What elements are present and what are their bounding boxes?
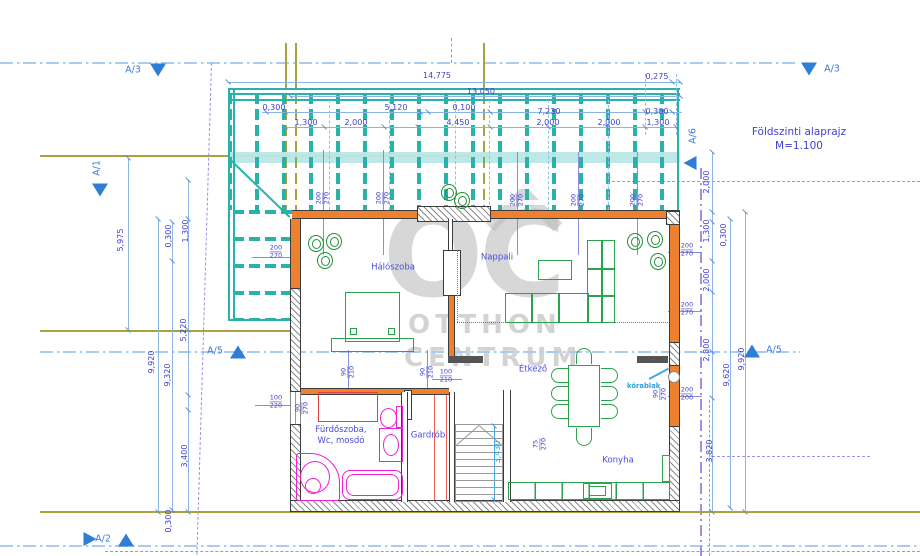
dimension-label: 0,300	[646, 108, 669, 116]
section-marker-triangle-icon	[801, 63, 817, 76]
hatched-wall	[417, 206, 491, 222]
furniture-line	[531, 293, 533, 323]
dimension-label: 3,400	[181, 445, 189, 468]
section-marker-label: A/3	[824, 64, 840, 74]
exterior-wall	[669, 219, 680, 342]
opening-width: 90	[340, 366, 347, 378]
pergola-edge	[677, 88, 679, 210]
section-marker-triangle-icon	[744, 345, 760, 358]
bath-fixture	[383, 434, 399, 456]
bath-fixture	[346, 474, 399, 496]
dining-chair	[551, 386, 568, 401]
section-marker-label: A/5	[766, 345, 782, 355]
room-label: Konyha	[602, 455, 633, 466]
opening-height: 210	[440, 377, 452, 384]
pergola-joists	[228, 210, 292, 320]
sliding-door-rail	[434, 395, 435, 500]
opening-width: 200	[570, 194, 577, 206]
opening-size-label: 200270	[681, 301, 693, 316]
dimension-label: 0,275	[646, 73, 669, 81]
plant-icon	[454, 192, 470, 209]
section-marker-triangle-icon	[230, 346, 246, 359]
dimension-label: 1,300	[647, 119, 670, 127]
dimension-label: 13,050	[467, 88, 495, 96]
drawing-scale: M=1.100	[742, 140, 856, 154]
section-marker-triangle-icon	[84, 532, 97, 546]
plant-icon	[317, 252, 333, 269]
dimension-label: 2,000	[345, 119, 368, 127]
dimension-label: 0,300	[720, 224, 728, 247]
dining-chair	[576, 428, 592, 446]
opening-height: 200	[681, 395, 693, 402]
hatched-wall	[290, 288, 301, 392]
dimension-label: 9,920	[148, 351, 156, 374]
opening-width: 100	[270, 394, 282, 401]
opening-size-label: 200270	[629, 194, 644, 206]
plot-boundary-line	[40, 330, 292, 332]
hatched-wall	[669, 342, 680, 366]
opening-width: 200	[681, 242, 693, 249]
opening-height: 270	[518, 194, 525, 206]
dimension-chain-line	[290, 96, 680, 97]
furniture-line	[558, 293, 560, 323]
pergola-edge	[228, 88, 230, 321]
dimension-label: 1,300	[703, 220, 711, 243]
dimension-label: 9,620	[723, 364, 731, 387]
opening-size-label: 90270	[652, 388, 667, 400]
dimension-label: 14,775	[423, 72, 451, 80]
dimension-label: 0,300	[263, 104, 286, 112]
pergola-edge	[233, 88, 235, 321]
pergola-beam	[228, 93, 680, 101]
shower-tray	[318, 392, 378, 422]
plant-icon	[308, 235, 324, 252]
opening-height: 220	[270, 403, 282, 410]
hatched-wall	[669, 426, 680, 502]
dimension-label: 0,300	[165, 225, 173, 248]
opening-height: 270	[681, 310, 693, 317]
opening-height: 270	[384, 192, 391, 204]
bath-fixture	[380, 408, 397, 428]
opening-height: 210	[428, 366, 435, 378]
plant-icon	[326, 233, 342, 250]
drawing-title: Földszinti alaprajz M=1.100	[742, 126, 856, 153]
opening-height: 270	[324, 192, 331, 204]
opening-height: 270	[541, 438, 548, 450]
opening-size-label: 200270	[270, 244, 282, 259]
dimension-label: 0,300	[165, 510, 173, 533]
plant-icon	[647, 231, 663, 248]
wall-sill	[448, 356, 483, 363]
furniture-line	[587, 268, 615, 270]
dimension-chain-line	[262, 112, 682, 113]
dimension-label: 7,230	[538, 108, 561, 116]
opening-width: 200	[315, 192, 322, 204]
section-marker-triangle-icon	[118, 534, 134, 547]
dimension-label: 1,300	[295, 119, 318, 127]
round-window	[668, 371, 680, 383]
dimension-label: 2,800	[703, 339, 711, 362]
dimension-label: 3,820	[706, 440, 714, 463]
dining-chair	[576, 348, 592, 364]
witness-dashed-line	[489, 100, 490, 210]
furniture-outline	[331, 338, 414, 352]
opening-size-label: 200270	[375, 192, 390, 204]
opening-size-label: 200270	[315, 192, 330, 204]
opening-size-label: 90210	[340, 366, 355, 378]
dimension-chain-line	[128, 158, 129, 330]
furniture-outline	[568, 365, 600, 427]
furniture-outline	[350, 328, 357, 335]
opening-width: 75	[532, 438, 539, 450]
drawing-title-text: Földszinti alaprajz	[742, 126, 856, 140]
opening-size-label: 100210	[440, 368, 452, 383]
opening-width: 90	[294, 402, 301, 414]
opening-width: 90	[652, 388, 659, 400]
bath-fixture	[396, 406, 403, 428]
opening-size-label: 200270	[509, 194, 524, 206]
section-marker-label: A/2	[95, 534, 111, 544]
section-marker-label: A/5	[207, 346, 223, 356]
dimension-label: 4,450	[447, 119, 470, 127]
dimension-chain-line	[285, 127, 677, 128]
furniture-outline	[662, 455, 670, 482]
opening-height: 210	[349, 366, 356, 378]
dimension-label: 2,000	[537, 119, 560, 127]
opening-height: 270	[661, 388, 668, 400]
furniture-outline	[388, 328, 395, 335]
opening-width: 90	[419, 366, 426, 378]
dimension-label: 2,000	[703, 269, 711, 292]
pergola-edge	[228, 319, 292, 321]
furniture-outline	[538, 260, 572, 280]
opening-height: 270	[303, 402, 310, 414]
section-marker-triangle-icon	[150, 64, 166, 77]
setback-dashed-line	[451, 38, 452, 63]
dimension-chain-line	[158, 219, 159, 512]
setback-dashed-line	[712, 456, 870, 457]
hatched-wall	[666, 211, 680, 225]
opening-width: 200	[629, 194, 636, 206]
room-label: Nappali	[481, 252, 513, 263]
section-marker-label: A/1	[92, 160, 102, 176]
opening-size-label: 200270	[681, 242, 693, 257]
opening-width: 200	[270, 244, 282, 251]
section-marker-label: A/3	[125, 65, 141, 75]
opening-height: 270	[681, 251, 693, 258]
dining-chair	[551, 368, 568, 383]
section-marker-triangle-icon	[92, 184, 108, 197]
sliding-door-rail	[446, 395, 447, 500]
furniture-line	[587, 295, 615, 297]
dimension-label: 9,320	[164, 364, 172, 387]
plot-dashed-boundary	[196, 63, 212, 555]
opening-size-label: 100220	[270, 394, 282, 409]
dimension-label: 5,220	[180, 319, 188, 342]
witness-dashed-line	[548, 100, 549, 210]
round-window-arrow	[649, 368, 669, 380]
section-dashdot-line	[0, 545, 920, 547]
room-label: Étkező	[519, 364, 547, 375]
dining-chair	[601, 404, 618, 419]
room-label: Fürdőszoba, Wc, mosdó	[315, 425, 366, 447]
floor-plan-canvas: Földszinti alaprajz M=1.100 OC OTTHON CE…	[0, 0, 920, 556]
dimension-chain-line	[228, 82, 680, 83]
opening-width: 200	[681, 301, 693, 308]
door-leaf	[443, 250, 461, 296]
furniture-line	[601, 240, 603, 323]
setback-dashed-line	[709, 400, 710, 556]
exterior-wall	[290, 219, 301, 288]
plant-icon	[627, 233, 643, 250]
dimension-label: 0,100	[453, 104, 476, 112]
dimension-label: 2,000	[598, 119, 621, 127]
opening-size-label: 90270	[294, 402, 309, 414]
opening-width: 200	[681, 386, 693, 393]
bath-fixture	[305, 478, 321, 494]
dimension-label: 3,430	[494, 441, 502, 464]
witness-dashed-line	[608, 100, 609, 210]
opening-height: 270	[270, 253, 282, 260]
opening-size-label: 200270	[570, 194, 585, 206]
dimension-label: 5,120	[385, 104, 408, 112]
furniture-outline	[505, 293, 589, 323]
section-marker-label: A/6	[688, 128, 698, 144]
setback-dashed-line	[105, 551, 920, 552]
section-marker-triangle-icon	[684, 156, 697, 170]
section-dashdot-line	[0, 62, 795, 64]
opening-size-label: 75270	[532, 438, 547, 450]
room-label: Gardrób	[411, 430, 445, 441]
pergola-band	[228, 152, 680, 163]
opening-size-label: 200200	[681, 386, 693, 401]
opening-width: 200	[375, 192, 382, 204]
dining-chair	[551, 404, 568, 419]
dimension-chain-line	[172, 222, 173, 510]
plant-icon	[650, 253, 666, 270]
opening-height: 270	[579, 194, 586, 206]
opening-height: 270	[638, 194, 645, 206]
opening-width: 200	[509, 194, 516, 206]
room-label: Hálószoba	[371, 262, 415, 273]
dimension-label: 2,000	[703, 171, 711, 194]
dining-chair	[601, 386, 618, 401]
dimension-label: 5,975	[117, 229, 125, 252]
opening-width: 100	[440, 368, 452, 375]
wall-sill	[637, 356, 668, 363]
step-dotted-line	[457, 322, 668, 323]
pergola-edge	[228, 88, 680, 90]
opening-size-label: 90210	[419, 366, 434, 378]
step-dotted-line	[457, 250, 458, 322]
exterior-wall	[448, 296, 455, 358]
interior-wall	[448, 219, 453, 250]
dimension-label: 1,300	[182, 220, 190, 243]
furniture-outline	[589, 486, 606, 496]
dining-chair	[601, 368, 618, 383]
